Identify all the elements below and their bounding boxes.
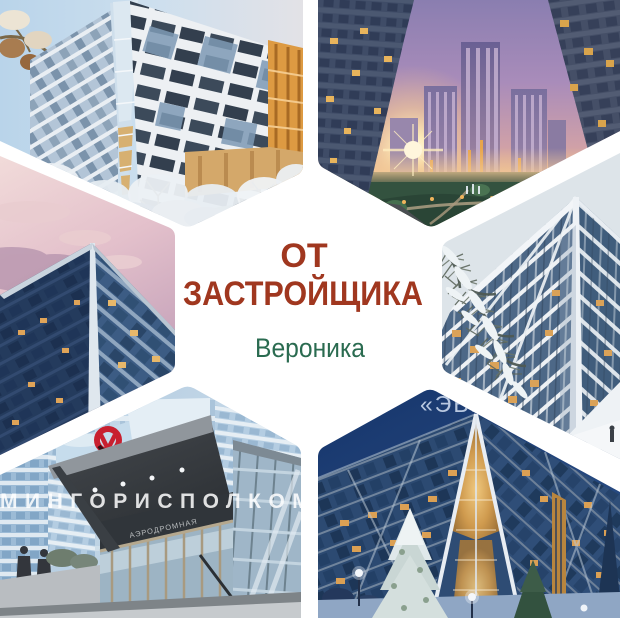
- svg-text:МИНГОРИСПОЛКОМ: МИНГОРИСПОЛКОМ: [0, 490, 317, 513]
- svg-text:ЗАСТРОЙЩИКА: ЗАСТРОЙЩИКА: [183, 274, 423, 313]
- svg-text:ОТ: ОТ: [280, 237, 327, 275]
- svg-text:Вероника: Вероника: [255, 333, 366, 363]
